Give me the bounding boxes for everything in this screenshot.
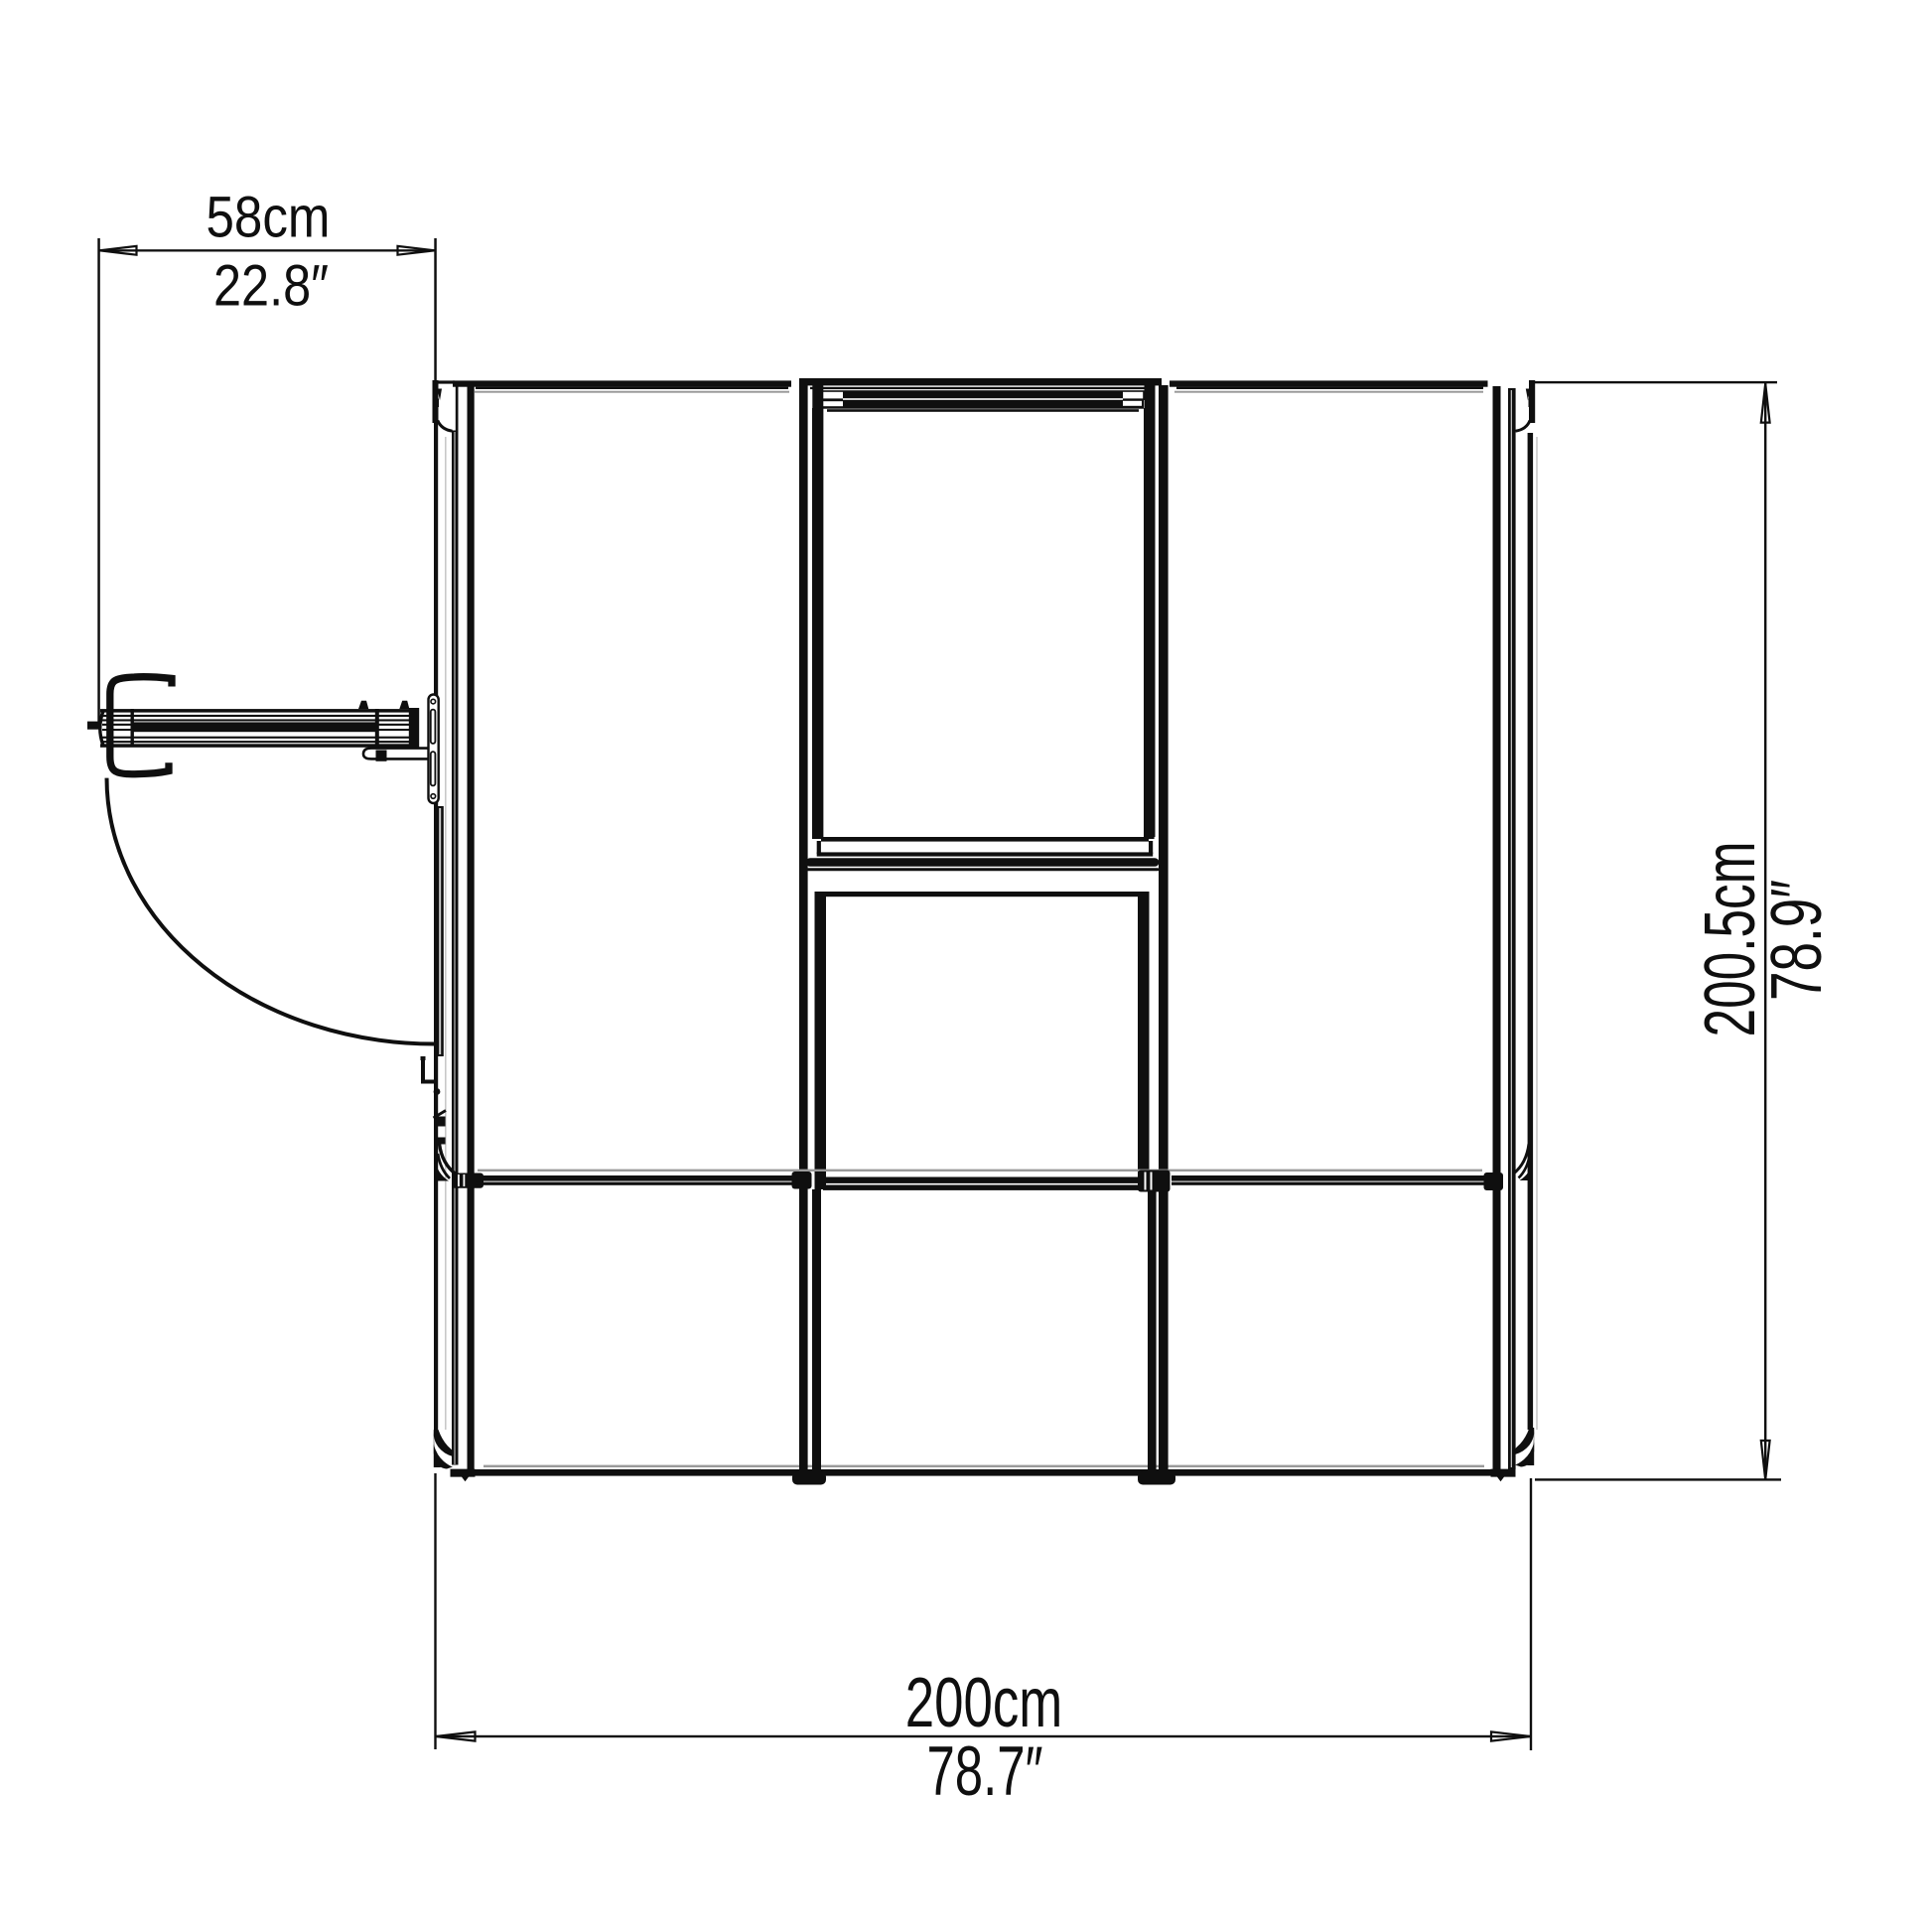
svg-text:78.7″: 78.7″ [927, 1731, 1043, 1810]
svg-text:78.9″: 78.9″ [1757, 880, 1837, 1001]
svg-text:58cm: 58cm [207, 186, 331, 250]
svg-text:200cm: 200cm [905, 1663, 1062, 1741]
svg-text:22.8″: 22.8″ [213, 254, 329, 319]
